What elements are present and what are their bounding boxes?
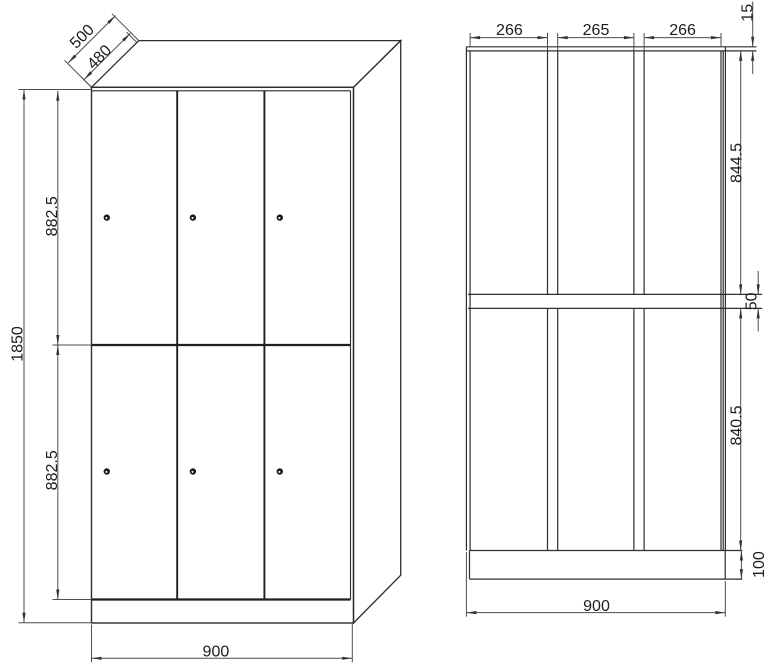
svg-text:844.5: 844.5 <box>729 143 746 183</box>
svg-text:266: 266 <box>669 22 696 39</box>
svg-text:1850: 1850 <box>10 326 27 362</box>
svg-text:266: 266 <box>496 22 523 39</box>
svg-text:15: 15 <box>739 4 756 22</box>
svg-text:50: 50 <box>743 292 760 310</box>
svg-text:900: 900 <box>583 598 610 615</box>
svg-text:900: 900 <box>203 644 230 661</box>
svg-text:882.5: 882.5 <box>44 196 61 236</box>
svg-text:500: 500 <box>67 21 98 52</box>
svg-text:840.5: 840.5 <box>729 405 746 445</box>
svg-text:882.5: 882.5 <box>44 450 61 490</box>
svg-text:265: 265 <box>583 22 610 39</box>
svg-text:100: 100 <box>751 551 768 578</box>
